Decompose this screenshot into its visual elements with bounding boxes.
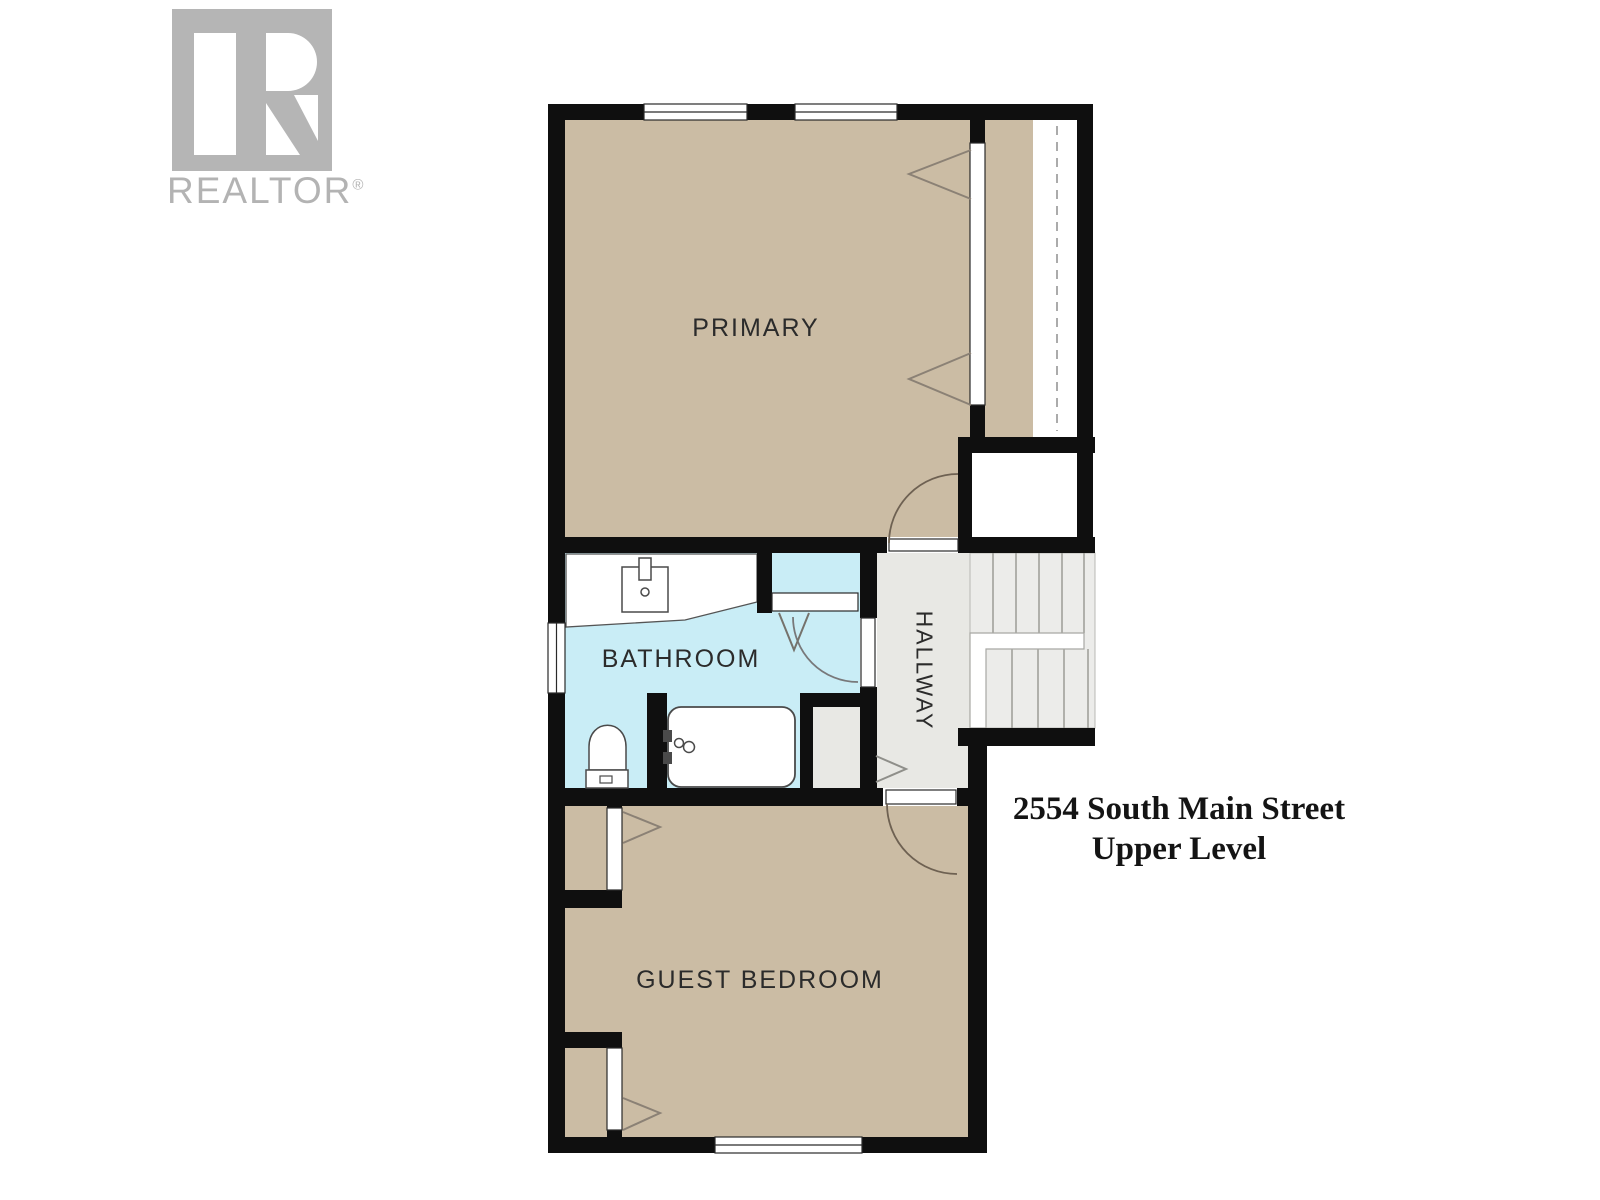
door-leaf-guest: [886, 790, 956, 804]
bathtub: [663, 707, 795, 787]
plan-title-level: Upper Level: [1008, 829, 1350, 869]
wall-landing-left: [958, 453, 972, 553]
wall-bath-hall-upper: [860, 553, 877, 618]
hallway-label-text: HALLWAY: [910, 611, 937, 731]
wall-bed-bottom-left: [548, 1137, 715, 1153]
wall-closet1-bottom: [548, 890, 622, 908]
staircase: [970, 553, 1095, 728]
door-leaf-primary: [889, 539, 958, 551]
floor-plan-drawing: [0, 0, 1600, 1200]
wall-stairs-bottom: [958, 728, 1095, 746]
wall-primary-bottom: [548, 537, 887, 553]
wall-stairs-top: [958, 537, 1095, 553]
wall-right-upper: [1077, 104, 1093, 553]
primary-closet-shelf: [1033, 120, 1078, 437]
room-label-guest-bedroom: GUEST BEDROOM: [610, 964, 910, 996]
bifold-track-bath-niche: [772, 593, 858, 611]
floorplan-page: REALTOR®: [0, 0, 1600, 1200]
wall-niche-left: [757, 553, 772, 613]
wall-bed-right: [968, 728, 987, 1153]
room-label-primary: PRIMARY: [656, 312, 856, 344]
door-leaf-bathroom: [861, 618, 875, 687]
bifold-track-guest-closet-2: [607, 1048, 622, 1130]
plan-title: 2554 South Main Street Upper Level: [1008, 789, 1350, 869]
toilet: [586, 725, 628, 788]
room-label-hallway: HALLWAY: [877, 553, 970, 788]
wall-closet2-cap: [607, 1130, 622, 1137]
room-label-bathroom: BATHROOM: [581, 643, 781, 675]
wall-bed-bottom-right: [862, 1137, 987, 1153]
wall-bed-top-left: [548, 788, 883, 806]
primary-closet-floor: [985, 120, 1033, 437]
wall-closet2-top: [548, 1032, 622, 1048]
wall-closet-bottom: [958, 437, 1095, 453]
bifold-track-guest-closet-1: [607, 808, 622, 890]
wall-bifold-cap-bottom: [970, 405, 985, 437]
wall-linen-left: [800, 693, 813, 788]
wall-linen-right: [863, 707, 877, 755]
bifold-track-primary-closet: [970, 143, 985, 405]
wall-bifold-cap-top: [970, 120, 985, 143]
plan-title-address: 2554 South Main Street: [1008, 789, 1350, 829]
